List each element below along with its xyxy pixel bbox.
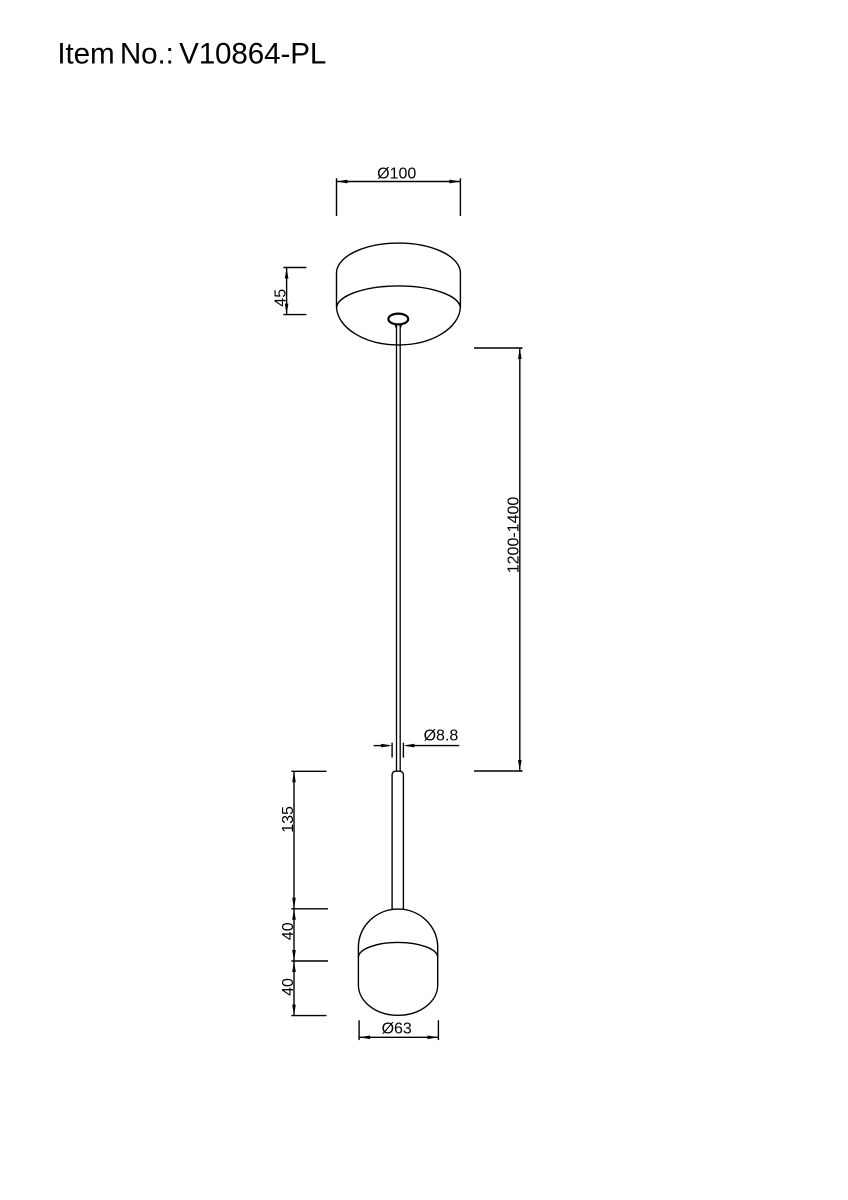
svg-text:Item No.: V10864-PL: Item No.: V10864-PL: [57, 38, 326, 71]
svg-text:Ø63: Ø63: [382, 1021, 412, 1038]
svg-text:Ø8.8: Ø8.8: [424, 728, 459, 745]
svg-text:45: 45: [273, 289, 290, 307]
svg-text:40: 40: [280, 978, 297, 996]
svg-text:40: 40: [280, 922, 297, 940]
svg-text:135: 135: [280, 806, 297, 833]
svg-text:1200-1400: 1200-1400: [506, 497, 523, 574]
svg-text:Ø100: Ø100: [377, 166, 416, 183]
